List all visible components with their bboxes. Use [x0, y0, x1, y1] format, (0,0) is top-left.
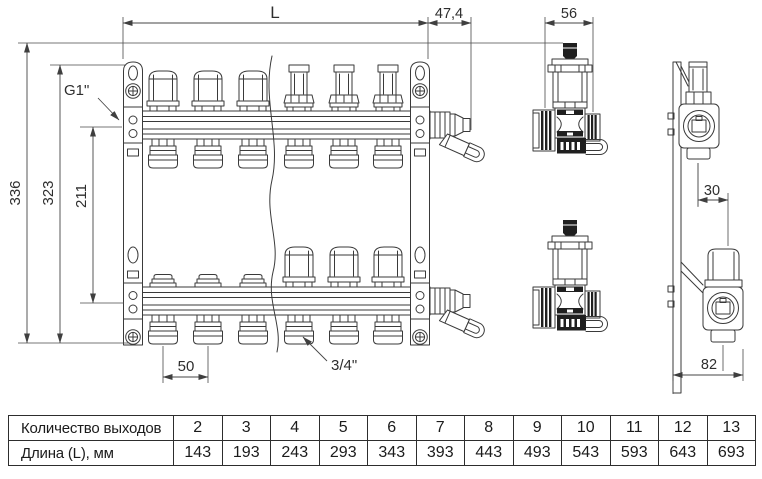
- value-cell: 493: [513, 441, 562, 466]
- air-vent-detail-bottom: [533, 220, 608, 332]
- dim-label-outlet-thread: 3/4": [331, 357, 357, 374]
- mounting-bracket-right: [411, 62, 430, 345]
- value-cell: 293: [319, 441, 368, 466]
- value-cell: 593: [610, 441, 659, 466]
- valve-cap: [328, 247, 360, 287]
- dim-label-336: 336: [7, 180, 24, 205]
- manifold-front-view: [124, 56, 487, 352]
- air-vent-detail-top: [533, 43, 608, 155]
- row-length: Длина (L), мм 143 193 243 293 343 393 44…: [9, 441, 756, 466]
- manifold-technical-drawing-page: L 47,4 56 G1" 336 323 211 50 3/4": [0, 0, 762, 479]
- value-cell: 6: [368, 416, 417, 441]
- valve-cap: [192, 71, 224, 111]
- dim-label-30: 30: [704, 183, 720, 199]
- value-cell: 7: [416, 416, 465, 441]
- dim-label-inlet-thread: G1": [64, 82, 89, 99]
- value-cell: 343: [368, 441, 417, 466]
- value-cell: 4: [271, 416, 320, 441]
- dim-label-82: 82: [701, 357, 717, 373]
- flow-meter: [329, 65, 359, 111]
- side-view-lower-valve: [681, 249, 743, 371]
- value-cell: 243: [271, 441, 320, 466]
- return-manifold-bar: [124, 287, 430, 315]
- flat-valve-cap: [240, 275, 266, 288]
- manifold-side-view: [668, 62, 743, 393]
- value-cell: 13: [707, 416, 756, 441]
- dim-label-50: 50: [178, 358, 195, 375]
- dim-label-L: L: [270, 3, 279, 22]
- value-cell: 693: [707, 441, 756, 466]
- value-cell: 643: [659, 441, 708, 466]
- value-cell: 8: [465, 416, 514, 441]
- drain-valve-top: [430, 112, 487, 164]
- outputs-length-table: Количество выходов 2 3 4 5 6 7 8 9 10 11…: [8, 415, 756, 466]
- value-cell: 143: [174, 441, 223, 466]
- row-label: Количество выходов: [9, 416, 174, 441]
- dim-label-47-4: 47,4: [435, 6, 463, 22]
- value-cell: 11: [610, 416, 659, 441]
- technical-drawing: L 47,4 56 G1" 336 323 211 50 3/4": [0, 0, 762, 410]
- spec-table: Количество выходов 2 3 4 5 6 7 8 9 10 11…: [8, 415, 756, 466]
- flow-meter: [373, 65, 403, 111]
- value-cell: 5: [319, 416, 368, 441]
- valve-cap: [283, 247, 315, 287]
- value-cell: 443: [465, 441, 514, 466]
- row-outputs-count: Количество выходов 2 3 4 5 6 7 8 9 10 11…: [9, 416, 756, 441]
- value-cell: 9: [513, 416, 562, 441]
- dim-label-211: 211: [73, 184, 90, 208]
- drain-valve-bottom: [430, 288, 487, 340]
- row-label: Длина (L), мм: [9, 441, 174, 466]
- value-cell: 543: [562, 441, 611, 466]
- value-cell: 393: [416, 441, 465, 466]
- value-cell: 12: [659, 416, 708, 441]
- dim-label-56: 56: [561, 6, 577, 22]
- flat-valve-cap: [150, 275, 176, 288]
- value-cell: 2: [174, 416, 223, 441]
- value-cell: 10: [562, 416, 611, 441]
- valve-cap: [237, 71, 269, 111]
- dim-label-323: 323: [40, 180, 57, 205]
- value-cell: 3: [222, 416, 271, 441]
- value-cell: 193: [222, 441, 271, 466]
- mounting-bracket-left: [124, 62, 143, 345]
- supply-manifold-bar: [124, 111, 430, 139]
- valve-cap: [372, 247, 404, 287]
- flat-valve-cap: [195, 275, 221, 288]
- valve-cap: [147, 71, 179, 111]
- flow-meter: [284, 65, 314, 111]
